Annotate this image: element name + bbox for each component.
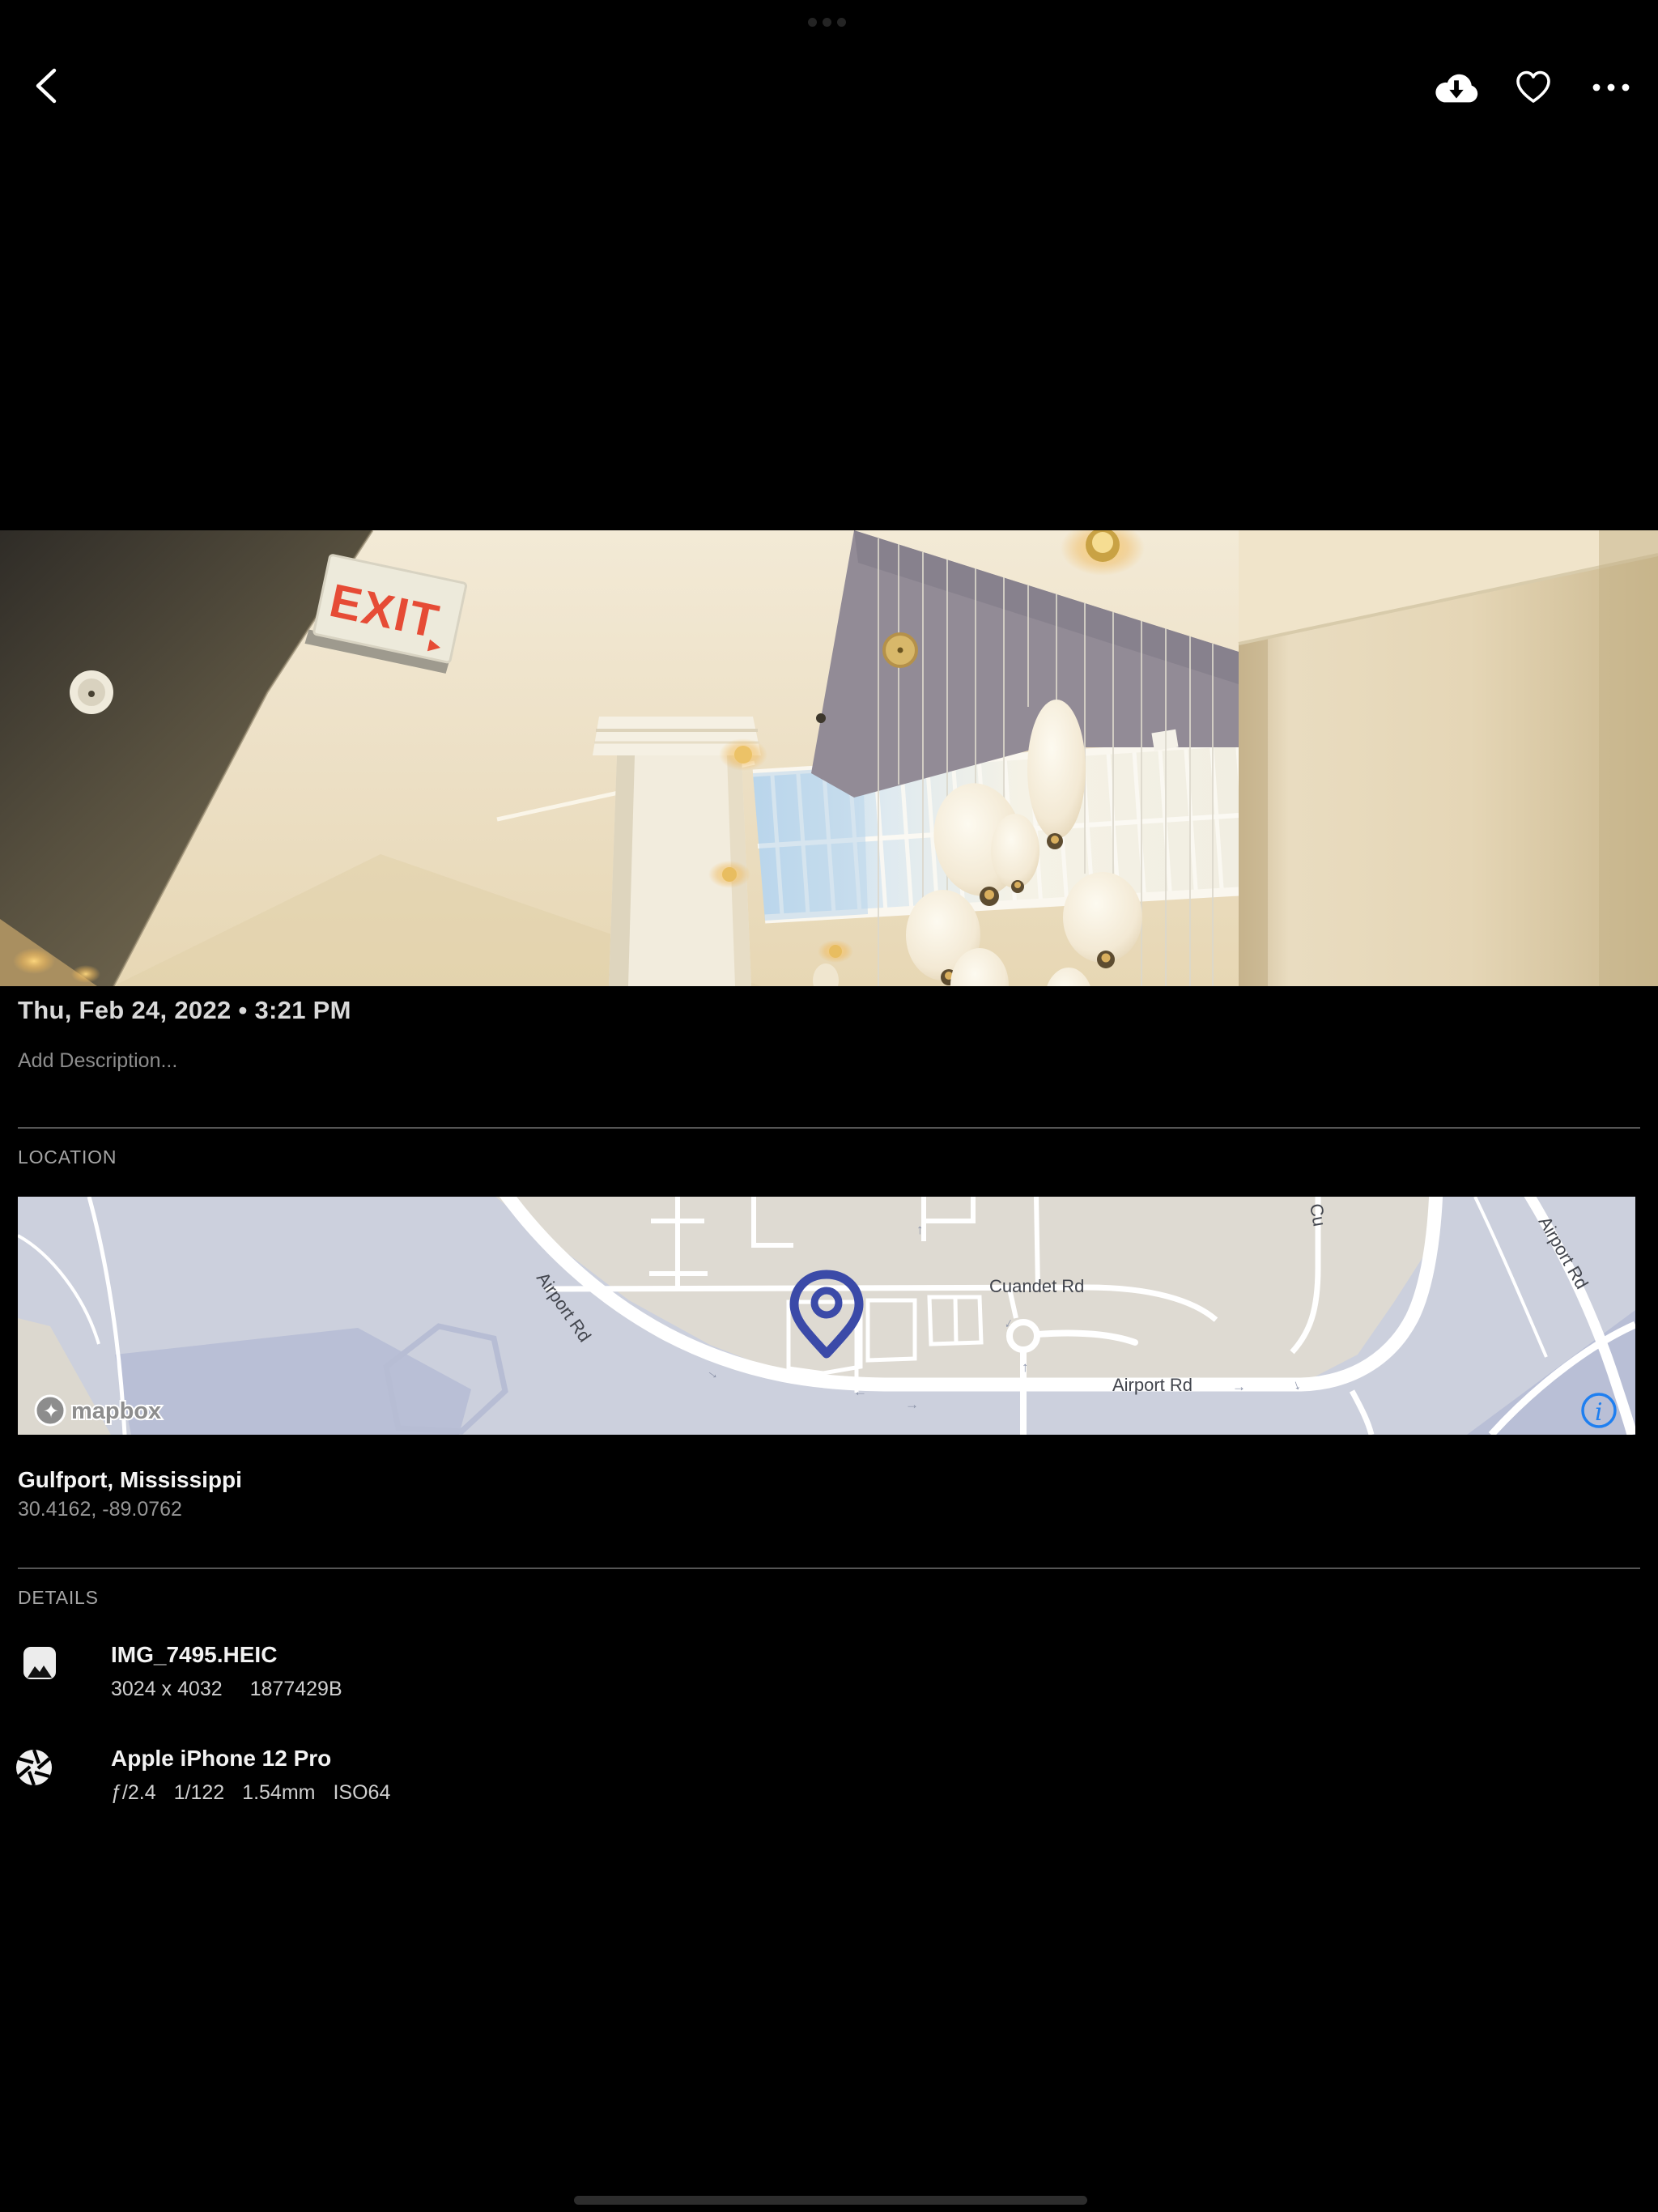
favorite-button[interactable] (1511, 65, 1556, 110)
svg-text:→: → (1232, 1379, 1246, 1394)
camera-exif: ƒ/2.41/1221.54mmISO64 (111, 1781, 408, 1805)
download-button[interactable] (1434, 65, 1479, 110)
photo-viewer[interactable]: EXIT ▸ (0, 530, 1658, 986)
ceiling-photo: EXIT ▸ (0, 530, 1658, 986)
location-header: LOCATION (18, 1146, 117, 1168)
svg-text:i: i (1595, 1398, 1603, 1427)
location-place: Gulfport, Mississippi (18, 1467, 242, 1493)
heart-icon (1515, 70, 1552, 105)
divider (18, 1568, 1640, 1569)
chevron-left-icon (29, 65, 65, 107)
file-name: IMG_7495.HEIC (111, 1642, 277, 1668)
aperture-icon (14, 1747, 54, 1792)
svg-text:✦: ✦ (43, 1401, 59, 1423)
svg-text:←: ← (853, 1384, 867, 1399)
divider (18, 1127, 1640, 1129)
home-indicator[interactable] (574, 2196, 1087, 2205)
exif-aperture: ƒ/2.4 (111, 1781, 156, 1804)
description-input[interactable]: Add Description... (18, 1049, 177, 1073)
mapbox-logo-text: mapbox (71, 1398, 161, 1424)
svg-text:↑: ↑ (916, 1222, 924, 1237)
file-dimensions: 3024 x 4032 (111, 1678, 223, 1700)
image-file-icon (23, 1647, 56, 1679)
exif-iso: ISO64 (333, 1781, 390, 1804)
map-label-airport-rd-bottom: Airport Rd (1112, 1375, 1192, 1395)
mapbox-logo[interactable]: ✦ mapbox (36, 1396, 161, 1425)
map-label-cuandet-rd: Cuandet Rd (989, 1276, 1084, 1296)
multitask-indicator[interactable] (808, 18, 846, 27)
map-label-cross-street: Cu (1306, 1202, 1330, 1228)
back-button[interactable] (24, 63, 70, 108)
map-canvas: ←→→ ↑↑ → → → Airport Rd Cuandet Rd Airpo… (18, 1197, 1635, 1435)
location-coordinates: 30.4162, -89.0762 (18, 1498, 182, 1521)
photo-date: Thu, Feb 24, 2022 • 3:21 PM (18, 996, 351, 1025)
more-options-button[interactable] (1588, 65, 1634, 110)
file-size: 1877429B (250, 1678, 342, 1700)
file-info: 3024 x 40321877429B (111, 1678, 360, 1701)
details-header: DETAILS (18, 1587, 99, 1609)
camera-model: Apple iPhone 12 Pro (111, 1746, 331, 1772)
svg-text:→: → (905, 1397, 919, 1412)
cloud-download-icon (1434, 69, 1479, 106)
svg-text:↑: ↑ (1022, 1359, 1029, 1375)
exif-shutter: 1/122 (174, 1781, 225, 1804)
right-wall (1239, 530, 1658, 986)
exif-focal-length: 1.54mm (242, 1781, 315, 1804)
ellipsis-icon (1589, 79, 1633, 96)
location-map[interactable]: ←→→ ↑↑ → → → Airport Rd Cuandet Rd Airpo… (18, 1197, 1635, 1435)
